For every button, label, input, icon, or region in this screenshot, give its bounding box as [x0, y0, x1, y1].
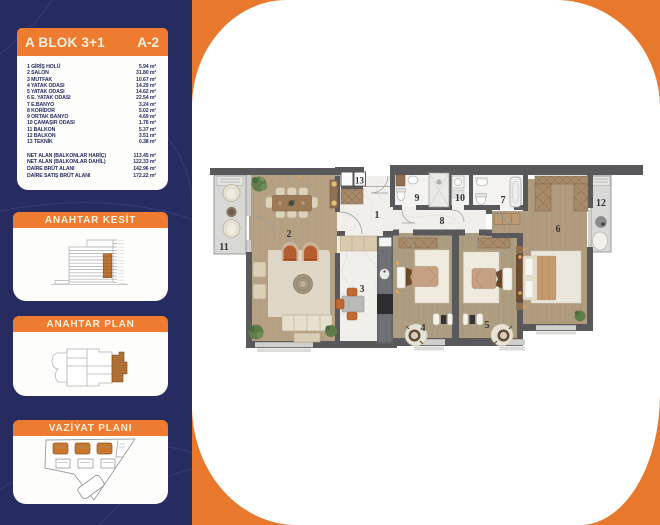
- svg-text:3: 3: [360, 284, 365, 295]
- svg-text:11: 11: [219, 242, 228, 253]
- svg-text:7: 7: [501, 195, 506, 206]
- svg-text:5: 5: [485, 320, 490, 331]
- svg-text:10: 10: [455, 193, 465, 204]
- svg-text:13: 13: [355, 176, 365, 186]
- svg-text:8: 8: [440, 216, 445, 227]
- svg-text:12: 12: [596, 198, 606, 209]
- svg-text:6: 6: [556, 224, 561, 235]
- svg-text:2: 2: [287, 229, 292, 240]
- svg-text:9: 9: [415, 193, 420, 204]
- svg-text:1: 1: [375, 210, 380, 221]
- svg-text:4: 4: [421, 323, 426, 334]
